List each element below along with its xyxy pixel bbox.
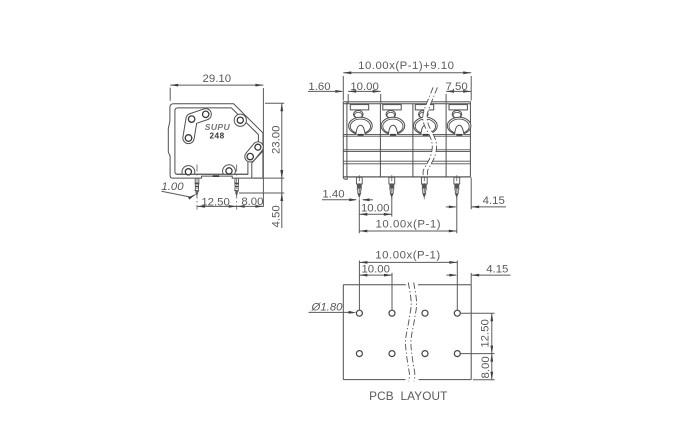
svg-text:4.15: 4.15 (486, 263, 508, 275)
svg-text:1.00: 1.00 (161, 181, 184, 193)
svg-text:10.00: 10.00 (361, 202, 390, 214)
svg-text:10.00: 10.00 (361, 263, 390, 275)
svg-text:12.50: 12.50 (201, 196, 230, 208)
svg-text:SUPU: SUPU (205, 122, 231, 132)
svg-text:10.00x(P-1): 10.00x(P-1) (376, 218, 442, 230)
svg-text:8.00: 8.00 (241, 196, 263, 208)
svg-text:1.40: 1.40 (322, 188, 344, 200)
svg-text:23.00: 23.00 (270, 126, 282, 155)
svg-text:12.50: 12.50 (480, 319, 492, 348)
svg-text:29.10: 29.10 (203, 73, 232, 85)
svg-text:Ø1.80: Ø1.80 (310, 302, 343, 314)
svg-text:10.00x(P-1)+9.10: 10.00x(P-1)+9.10 (358, 60, 454, 72)
svg-text:10.00: 10.00 (350, 81, 379, 93)
svg-text:8.00: 8.00 (480, 356, 492, 378)
svg-text:7.50: 7.50 (446, 81, 468, 93)
svg-text:248: 248 (210, 132, 225, 141)
svg-text:PCB LAYOUT: PCB LAYOUT (369, 389, 447, 403)
svg-text:4.50: 4.50 (271, 205, 283, 227)
svg-text:4.15: 4.15 (483, 195, 505, 207)
svg-text:10.00x(P-1): 10.00x(P-1) (375, 250, 441, 262)
